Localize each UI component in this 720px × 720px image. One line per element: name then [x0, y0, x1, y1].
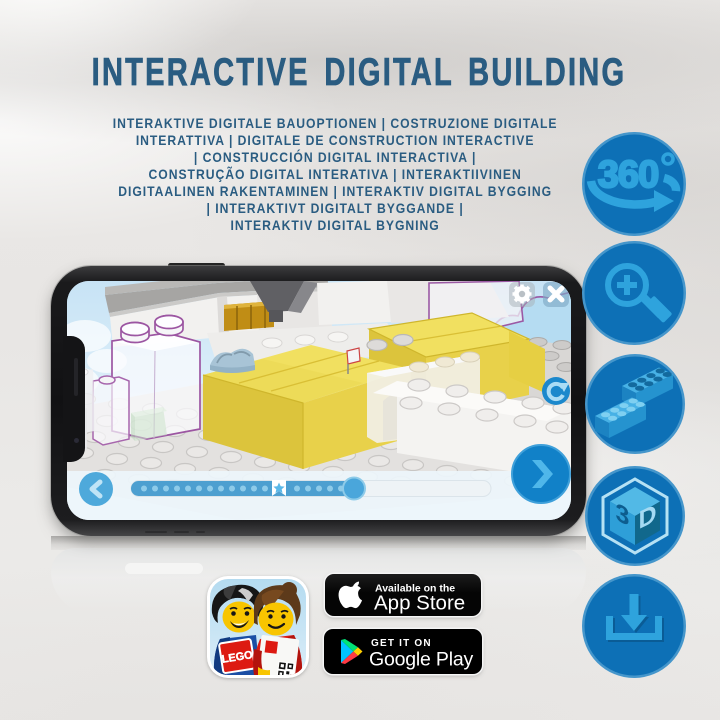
svg-text:Google Play: Google Play [369, 649, 473, 671]
svg-text:GET IT ON: GET IT ON [371, 638, 432, 649]
svg-text:360: 360 [598, 154, 658, 196]
svg-text:App Store: App Store [374, 592, 465, 615]
